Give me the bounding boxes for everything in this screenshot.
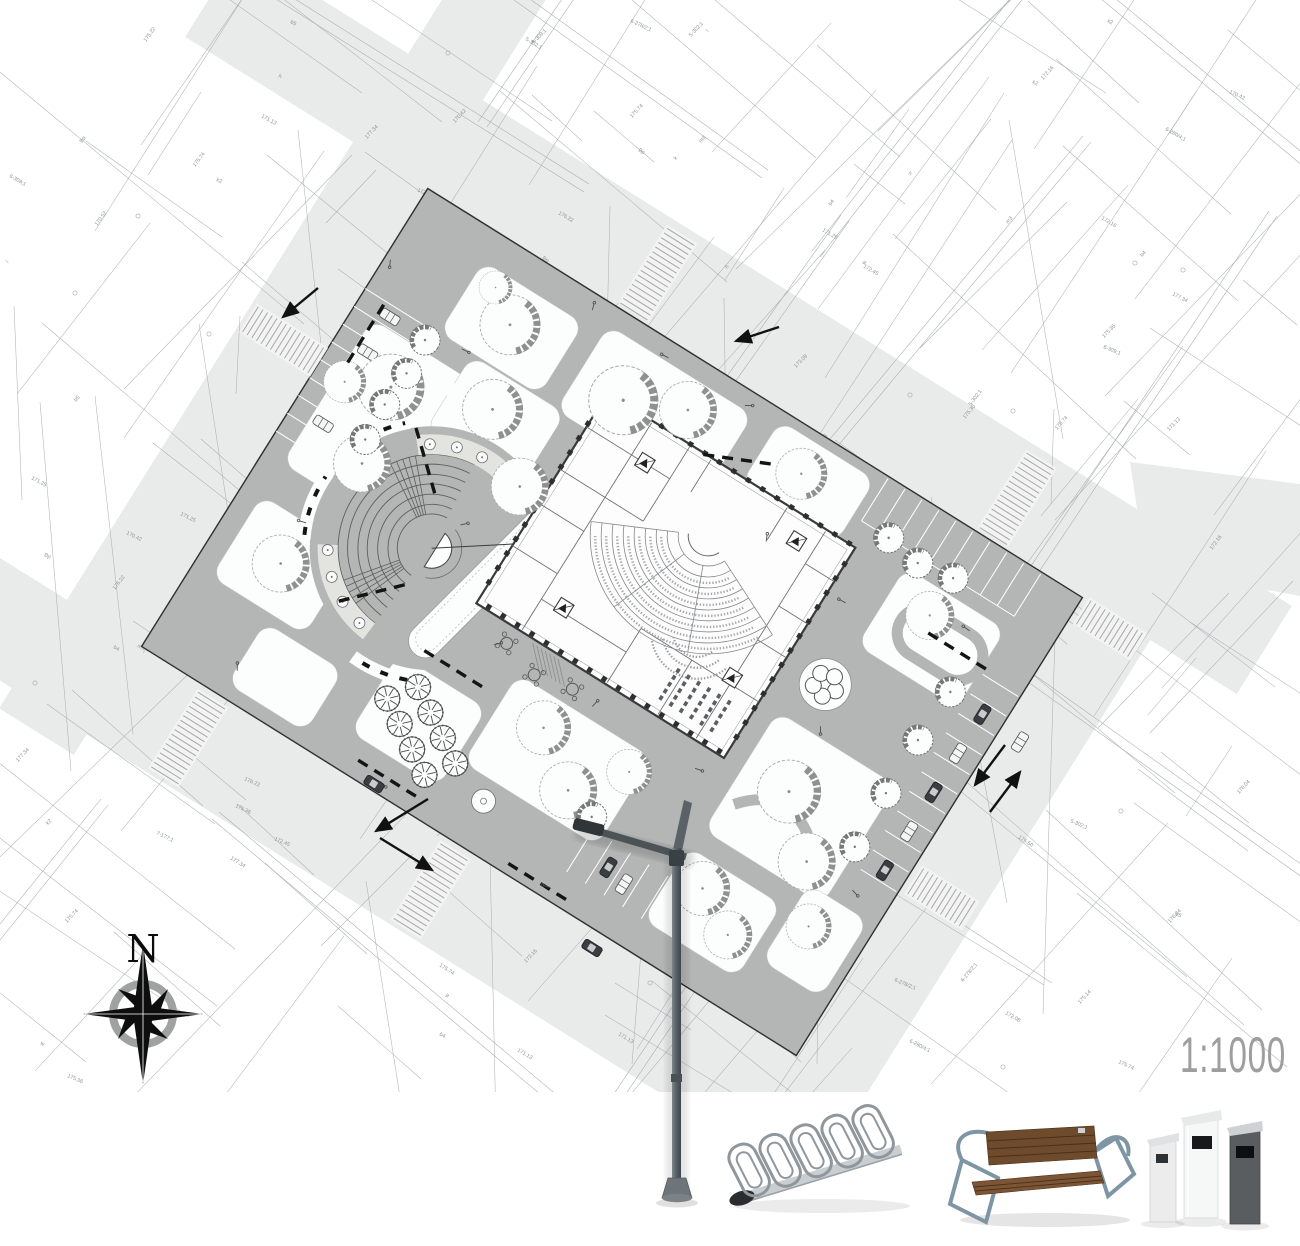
north-label: N — [126, 927, 159, 971]
litter-bin-small — [1150, 1140, 1176, 1222]
litter-bin-tall — [1184, 1118, 1218, 1218]
bench-plaque — [1078, 1128, 1085, 1133]
site-plan-image: 172.45172.80m3171.13k2172.16175.36k26-30… — [0, 0, 1300, 1246]
lamp-pole — [672, 848, 681, 1198]
site-plan-page: 172.45172.80m3171.13k2172.16175.36k26-30… — [0, 0, 1300, 1246]
lamp-bracket — [669, 850, 684, 866]
litter-bin-dark — [1230, 1128, 1260, 1224]
scale-label: 1:1000 — [1180, 1027, 1286, 1083]
